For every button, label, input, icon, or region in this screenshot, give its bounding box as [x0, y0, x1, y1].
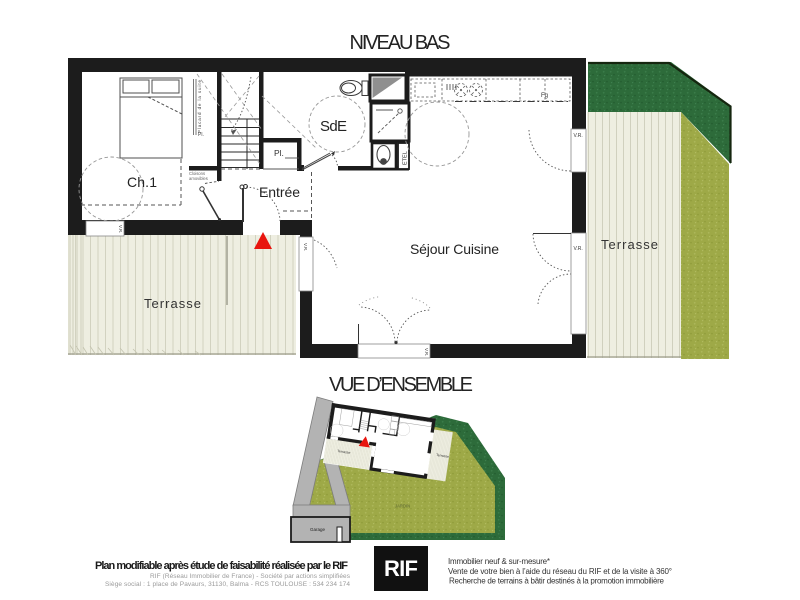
svg-text:Plan modifiable après étude de: Plan modifiable après étude de faisabili… — [95, 560, 348, 572]
svg-text:Terrasse: Terrasse — [601, 237, 658, 252]
svg-text:SdE: SdE — [320, 118, 347, 135]
svg-text:VUE D’ENSEMBLE: VUE D’ENSEMBLE — [329, 374, 473, 396]
svg-text:Fg: Fg — [541, 93, 548, 99]
svg-text:Séjour Cuisine: Séjour Cuisine — [410, 241, 499, 257]
svg-text:Garage: Garage — [310, 527, 326, 532]
svg-text:Pl.: Pl. — [198, 132, 204, 138]
svg-text:Placard de la suite: Placard de la suite — [197, 80, 202, 133]
svg-text:ETEL: ETEL — [403, 151, 409, 165]
svg-text:V.R.: V.R. — [574, 246, 583, 252]
svg-text:Vente de votre bien à l’aide d: Vente de votre bien à l’aide du réseau d… — [448, 567, 672, 576]
svg-text:RIF (Réseau Immobilier de Fran: RIF (Réseau Immobilier de France) - Soci… — [150, 573, 351, 580]
svg-text:V.R.: V.R. — [424, 348, 429, 356]
svg-text:Terrasse: Terrasse — [144, 296, 201, 311]
svg-text:Pl.: Pl. — [274, 148, 284, 158]
svg-text:V.R.: V.R. — [574, 133, 583, 139]
svg-text:JARDIN: JARDIN — [395, 504, 410, 509]
svg-text:NIVEAU BAS: NIVEAU BAS — [350, 32, 451, 54]
svg-text:Siège social : 1 place de Pava: Siège social : 1 place de Pavaurs, 31130… — [105, 581, 350, 588]
svg-text:RIF: RIF — [384, 556, 418, 581]
svg-text:amovibles: amovibles — [189, 176, 208, 181]
svg-text:V.R.: V.R. — [303, 243, 308, 251]
svg-text:Immobilier neuf & sur-mesure*: Immobilier neuf & sur-mesure* — [448, 557, 550, 566]
svg-text:Ch.1: Ch.1 — [127, 174, 157, 190]
svg-text:Recherche de terrains à bâtir: Recherche de terrains à bâtir destinés à… — [449, 577, 665, 586]
svg-text:V.R.: V.R. — [118, 225, 123, 233]
svg-text:Entrée: Entrée — [259, 184, 300, 200]
